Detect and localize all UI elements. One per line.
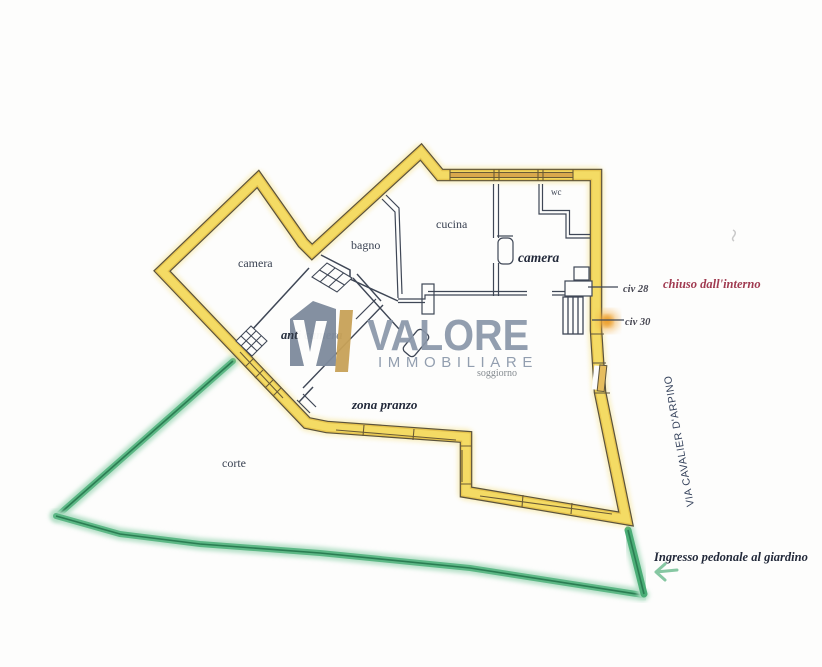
svg-text:bagno: bagno (351, 238, 380, 252)
svg-text:chiuso dall'interno: chiuso dall'interno (663, 277, 761, 291)
svg-text:IMMOBILIARE: IMMOBILIARE (378, 354, 538, 371)
svg-text:ant: ant (281, 328, 298, 342)
svg-text:civ 30: civ 30 (625, 317, 651, 328)
svg-text:zona pranzo: zona pranzo (351, 397, 418, 412)
svg-text:Ingresso pedonale al giardino: Ingresso pedonale al giardino (653, 550, 808, 564)
svg-text:VIA CAVALIER D'ARPINO: VIA CAVALIER D'ARPINO (662, 375, 697, 508)
svg-text:camera: camera (238, 256, 273, 270)
svg-text:camera: camera (518, 250, 559, 265)
svg-text:civ 28: civ 28 (623, 284, 649, 295)
svg-text:VALORE: VALORE (367, 310, 529, 359)
svg-text:corte: corte (222, 456, 246, 470)
svg-text:wc: wc (551, 187, 562, 197)
svg-text:cucina: cucina (436, 217, 468, 231)
